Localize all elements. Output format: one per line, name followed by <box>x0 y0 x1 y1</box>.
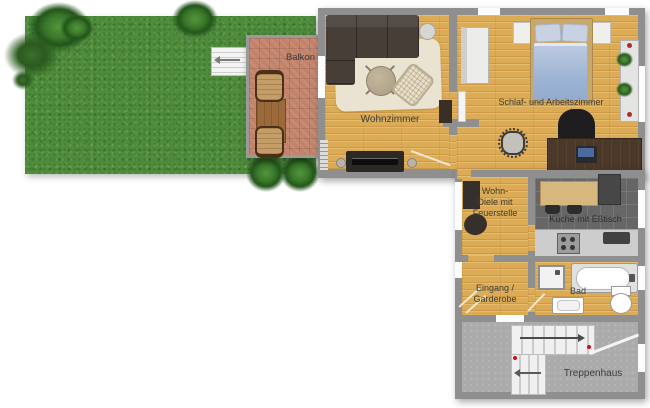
apartment-entry-door <box>496 315 524 322</box>
shower-head-icon <box>555 270 560 275</box>
room-label-line: Wohn- <box>462 186 528 197</box>
room-label-schlafzimmer: Schlaf- und Arbeitszimmer <box>488 97 614 108</box>
faucet-icon <box>629 274 635 282</box>
window <box>455 182 462 230</box>
bush-icon <box>60 14 94 42</box>
kitchen-tall-cabinet <box>598 174 621 205</box>
stairs-arrow-line <box>519 372 541 374</box>
flower-red-icon <box>627 43 632 48</box>
laptop-screen <box>578 148 594 157</box>
coffee-table <box>366 66 396 96</box>
kitchen-chair <box>567 205 582 214</box>
room-label-line: Eingang / <box>462 283 528 294</box>
bed <box>530 18 593 103</box>
stove-top <box>557 233 580 254</box>
sink-basin <box>557 300 580 311</box>
stairs-marker-dot <box>587 345 591 349</box>
kitchen-sink <box>603 232 630 244</box>
toilet <box>610 286 631 313</box>
steps-arrow-head-icon <box>214 56 220 64</box>
office-chair <box>496 126 526 157</box>
speaker <box>407 158 417 168</box>
window <box>455 262 462 278</box>
window <box>605 8 629 15</box>
office-chair-seat <box>501 131 525 155</box>
cabinet-dark <box>439 100 452 123</box>
door-gap-hall-entry <box>468 255 494 262</box>
room-label-wohnzimmer: Wohnzimmer <box>340 114 440 125</box>
stairs-arrow-line <box>520 337 578 339</box>
speaker <box>336 158 346 168</box>
side-table <box>419 23 436 40</box>
balcony-chair <box>255 126 284 158</box>
wardrobe <box>461 27 489 84</box>
bush-icon <box>280 154 320 192</box>
building-entrance-door <box>638 344 645 372</box>
kitchen-chair <box>545 205 560 214</box>
room-label-line: Diele mit <box>462 197 528 208</box>
potted-plant-icon <box>616 52 633 67</box>
balcony-chair <box>255 70 284 102</box>
burner-icon <box>561 237 566 242</box>
floor-plan: Balkon Wohnzimmer <box>0 0 650 408</box>
nightstand <box>592 22 611 44</box>
burner-icon <box>570 237 575 242</box>
room-label-line: Feuerstelle <box>462 208 528 219</box>
bathroom-sink <box>552 297 584 314</box>
dining-table <box>540 181 598 206</box>
burner-icon <box>570 245 575 250</box>
bed-duvet <box>534 43 587 100</box>
window <box>638 190 645 228</box>
steps-arrow-line <box>218 59 240 61</box>
burner-icon <box>561 245 566 250</box>
bush-icon <box>172 0 218 38</box>
door-gap-living-hall-passage <box>457 169 471 179</box>
stairs-arrow-head-icon <box>578 334 585 342</box>
kitchen-counter <box>535 229 638 256</box>
stairs-marker-dot <box>513 356 517 360</box>
radiator <box>320 140 328 170</box>
room-label-bad: Bad <box>558 286 598 297</box>
room-label-kueche: Küche mit Eßtisch <box>533 214 638 225</box>
room-label-wohndiele: Wohn- Diele mit Feuerstelle <box>462 186 528 219</box>
stairs-arrow-head-icon <box>514 369 520 377</box>
bush-icon <box>4 32 60 78</box>
door-leaf <box>458 91 466 122</box>
window <box>478 8 500 15</box>
room-label-line: Garderobe <box>462 294 528 305</box>
pillow <box>562 23 589 42</box>
pillow <box>535 23 562 42</box>
desk <box>547 138 642 173</box>
laptop <box>576 146 597 163</box>
flower-red-icon <box>627 112 632 117</box>
bush-icon <box>12 70 34 90</box>
window <box>638 266 645 290</box>
window <box>638 66 645 122</box>
sofa <box>326 15 419 58</box>
tv-screen <box>352 158 398 165</box>
tv-sideboard <box>346 151 404 172</box>
window <box>318 56 325 98</box>
potted-plant-icon <box>616 82 633 97</box>
door-gap-hall-kitchen <box>528 225 535 251</box>
room-label-balkon: Balkon <box>286 52 315 63</box>
toilet-bowl <box>610 293 632 314</box>
room-label-treppenhaus: Treppenhaus <box>548 368 638 379</box>
room-label-eingang: Eingang / Garderobe <box>462 283 528 305</box>
